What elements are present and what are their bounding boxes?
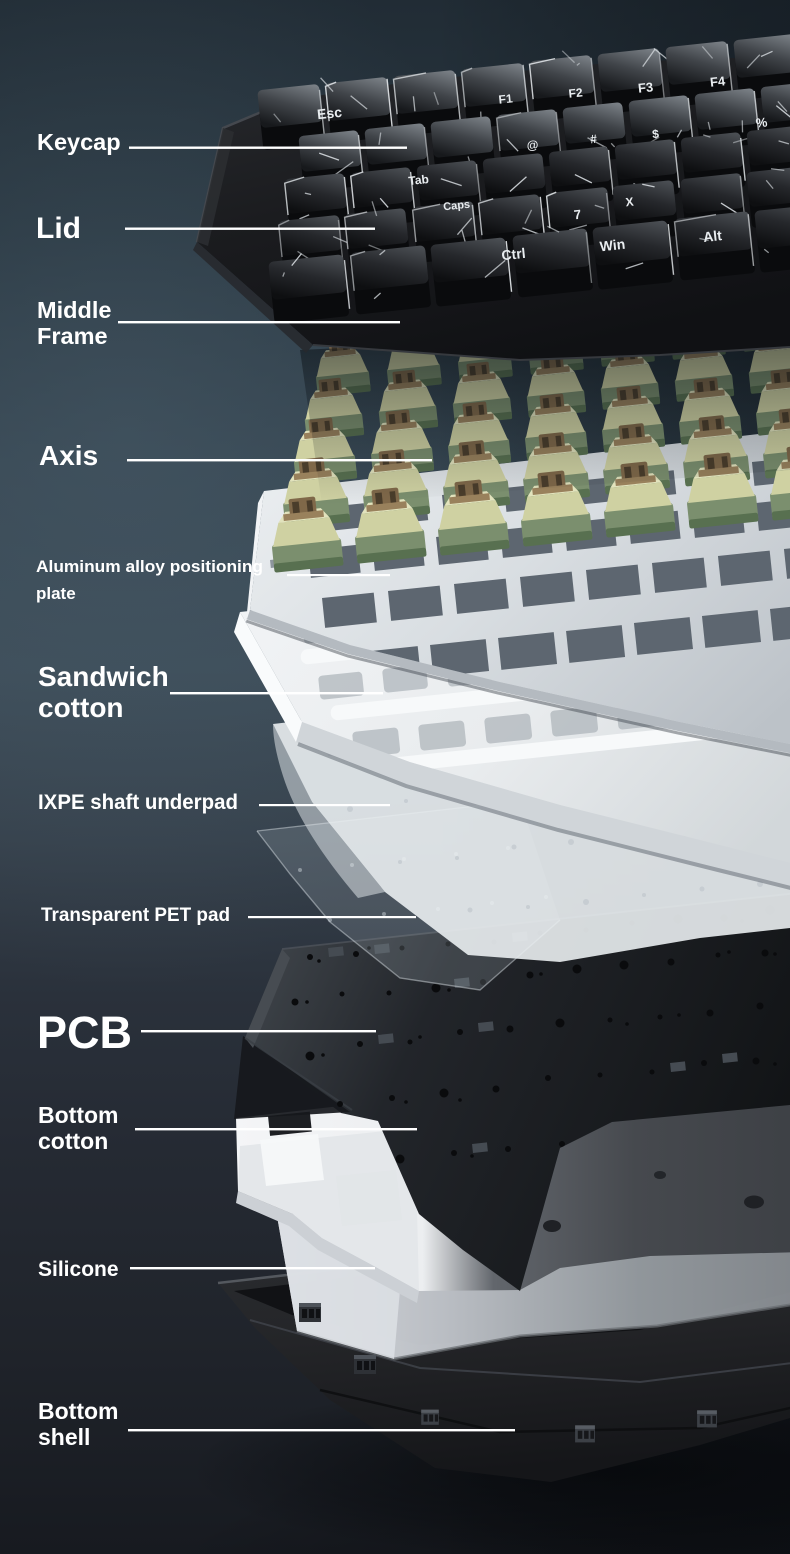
svg-text:Aluminum alloy positioning: Aluminum alloy positioning xyxy=(36,557,263,576)
svg-text:Transparent PET pad: Transparent PET pad xyxy=(41,905,230,926)
svg-text:Bottom: Bottom xyxy=(38,1102,118,1128)
svg-text:Alt: Alt xyxy=(702,227,723,245)
svg-text:7: 7 xyxy=(573,207,582,223)
svg-text:Ctrl: Ctrl xyxy=(501,245,527,263)
svg-text:Win: Win xyxy=(599,236,626,255)
svg-text:@: @ xyxy=(526,137,539,152)
svg-text:Bottom: Bottom xyxy=(38,1398,118,1424)
svg-text:Axis: Axis xyxy=(39,440,98,471)
svg-text:F1: F1 xyxy=(498,91,514,106)
svg-text:shell: shell xyxy=(38,1424,90,1450)
svg-text:PCB: PCB xyxy=(37,1007,132,1058)
svg-text:F4: F4 xyxy=(709,73,726,90)
svg-text:F2: F2 xyxy=(568,85,584,100)
svg-text:X: X xyxy=(625,195,634,210)
svg-text:cotton: cotton xyxy=(38,1128,108,1154)
svg-text:F3: F3 xyxy=(637,79,654,96)
svg-text:IXPE shaft underpad: IXPE shaft underpad xyxy=(38,791,238,814)
svg-text:%: % xyxy=(755,114,769,130)
svg-text:Frame: Frame xyxy=(37,323,108,349)
svg-text:cotton: cotton xyxy=(38,692,124,723)
svg-text:Silicone: Silicone xyxy=(38,1258,119,1281)
svg-text:Sandwich: Sandwich xyxy=(38,661,169,692)
svg-text:Esc: Esc xyxy=(316,104,343,123)
svg-text:Tab: Tab xyxy=(408,172,430,188)
svg-text:Middle: Middle xyxy=(37,297,111,323)
svg-text:Lid: Lid xyxy=(36,212,81,245)
svg-text:plate: plate xyxy=(36,584,76,603)
svg-text:Keycap: Keycap xyxy=(37,129,121,155)
